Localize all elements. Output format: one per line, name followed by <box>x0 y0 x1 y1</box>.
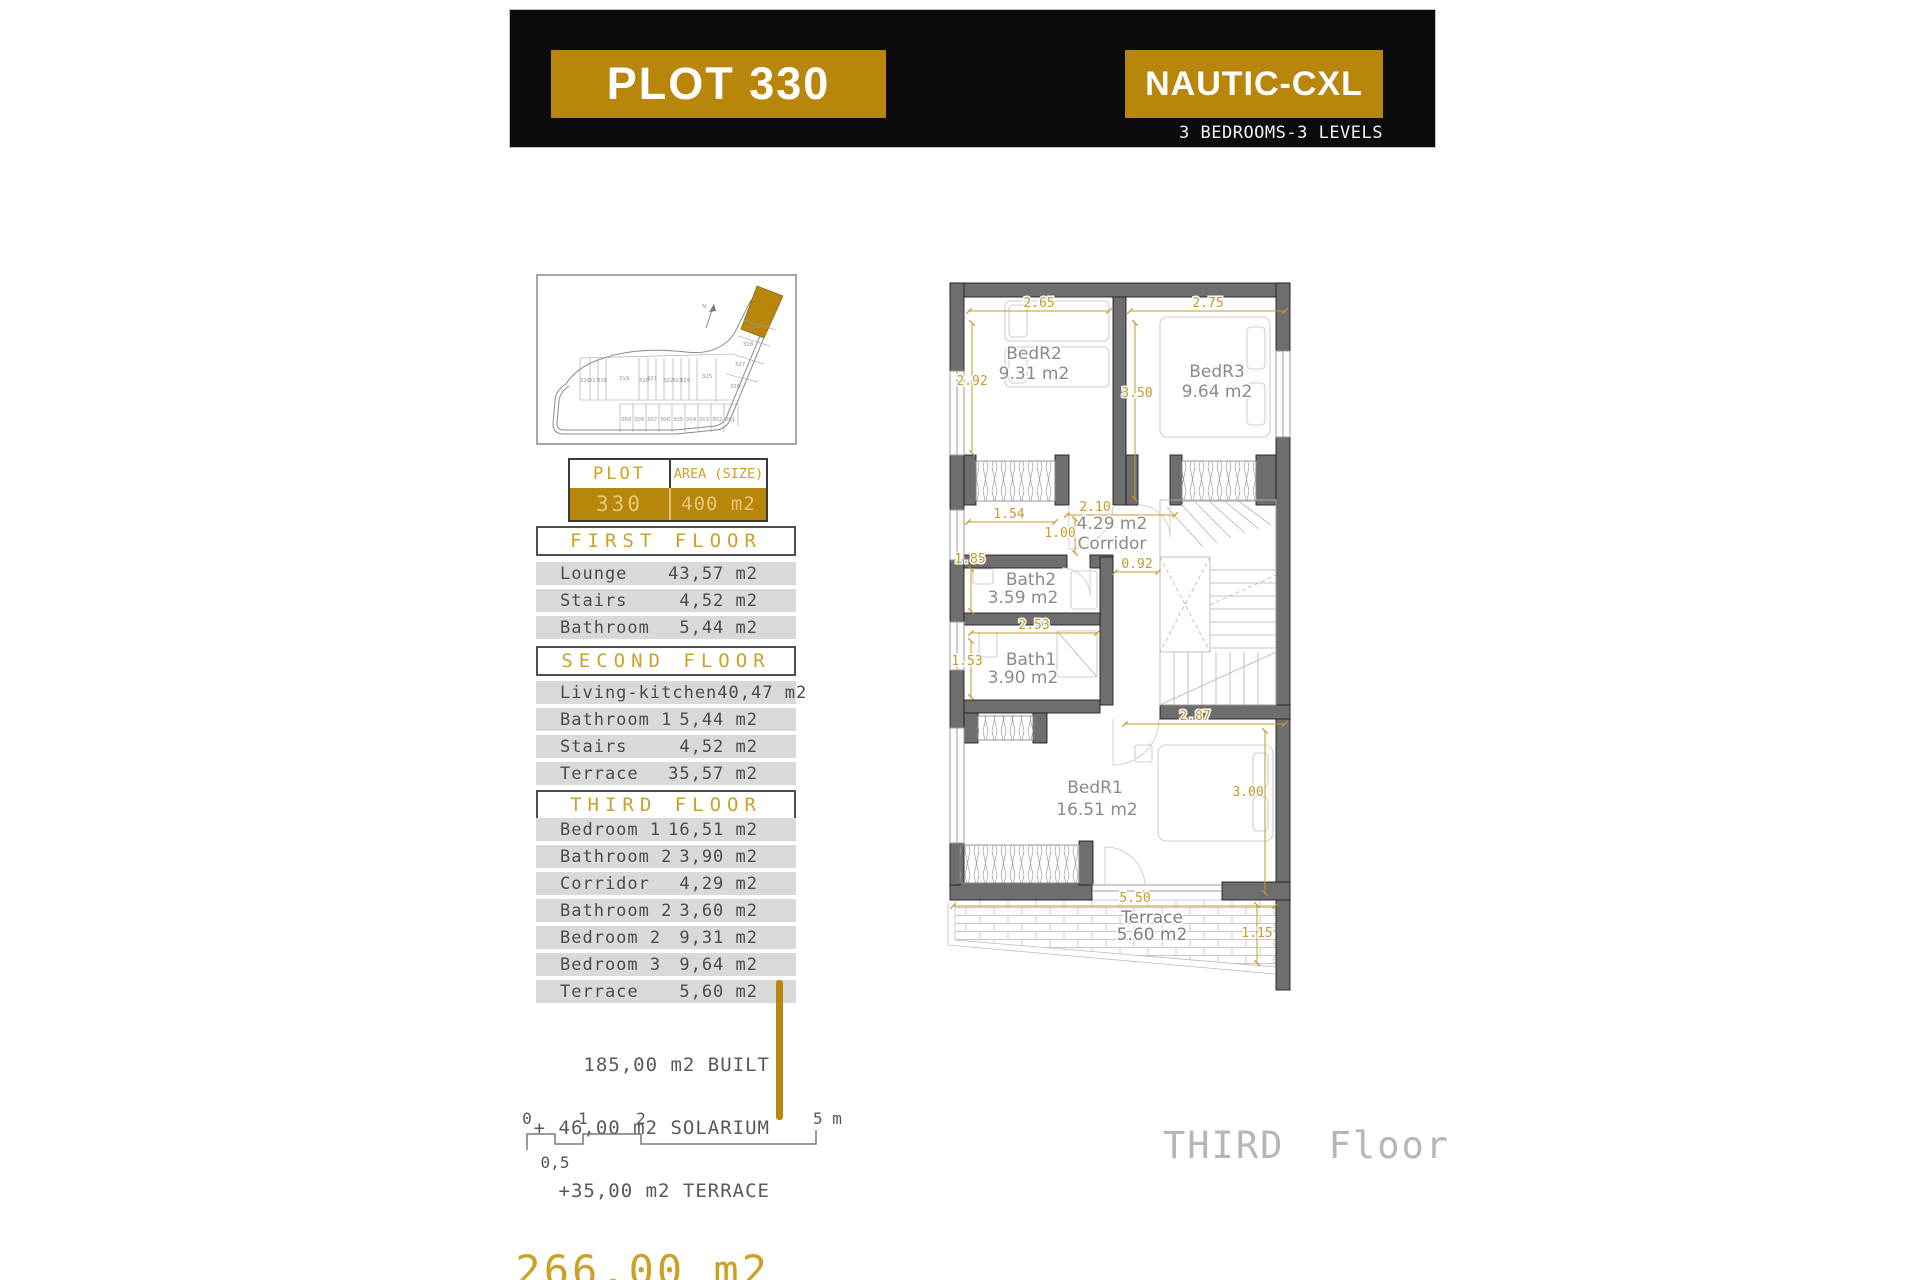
row-value: 4,52 m2 <box>679 591 758 611</box>
row-label: Bathroom 2 <box>560 847 672 867</box>
row-value: 40,47 m2 <box>717 683 807 703</box>
row-value: 5,60 m2 <box>679 982 758 1002</box>
room-area-bedr1: 16.51 m2 <box>1056 800 1137 820</box>
table-row: Bedroom 39,64 m2 <box>536 953 796 976</box>
dim-label: 2.10 <box>1079 500 1110 515</box>
room-area-bedr3: 9.64 m2 <box>1182 382 1253 402</box>
row-label: Bedroom 2 <box>560 928 661 948</box>
scale-tick-5m: 5 m <box>813 1110 842 1128</box>
dim-label: 1.00 <box>1044 526 1075 541</box>
row-value: 5,44 m2 <box>679 618 758 638</box>
room-label-corridor: Corridor <box>1078 534 1147 554</box>
svg-text:321: 321 <box>647 376 658 382</box>
model-badge: NAUTIC-CXL <box>1125 50 1383 118</box>
dim-label: 1.54 <box>993 507 1024 522</box>
third-floor-title: THIRD FLOOR <box>570 794 762 816</box>
plot-value-cell: 330 <box>570 488 671 520</box>
row-label: Bathroom 2 <box>560 901 672 921</box>
table-row: Terrace35,57 m2 <box>536 762 796 785</box>
total-terrace: +35,00 m2 TERRACE <box>420 1181 770 1202</box>
svg-text:303: 303 <box>699 417 710 423</box>
dim-label: 2.65 <box>1023 296 1054 311</box>
row-value: 3,90 m2 <box>679 847 758 867</box>
row-label: Living-kitchen <box>560 683 717 703</box>
second-floor-rows: Living-kitchen40,47 m2 Bathroom 15,44 m2… <box>536 681 796 789</box>
dim-label: 5.50 <box>1119 891 1150 906</box>
floor-caption: THIRD Floor <box>1163 1124 1450 1167</box>
svg-text:304: 304 <box>686 417 697 423</box>
row-value: 43,57 m2 <box>668 564 758 584</box>
dim-label: 3.00 <box>1232 785 1263 800</box>
scale-tick-1: 1 <box>578 1110 588 1128</box>
scale-bar: 0 1 2 5 m 0,5 <box>515 1110 855 1174</box>
totals-gold-marker <box>776 980 783 1120</box>
svg-text:301: 301 <box>725 417 736 423</box>
row-value: 35,57 m2 <box>668 764 758 784</box>
table-row: Terrace5,60 m2 <box>536 980 796 1003</box>
row-label: Corridor <box>560 874 650 894</box>
table-row: Bathroom 23,60 m2 <box>536 899 796 922</box>
dim-label: 2.53 <box>1018 618 1049 633</box>
grand-total: 266,00 m2 <box>420 1250 770 1280</box>
svg-text:329: 329 <box>750 324 761 330</box>
row-label: Stairs <box>560 737 627 757</box>
svg-text:302: 302 <box>712 417 723 423</box>
room-area-bath1: 3.90 m2 <box>988 668 1059 688</box>
table-row: Bedroom 29,31 m2 <box>536 926 796 949</box>
third-floor-rows: Bedroom 116,51 m2 Bathroom 23,90 m2 Corr… <box>536 818 796 1007</box>
total-built: 185,00 m2 BUILT <box>420 1055 770 1076</box>
svg-text:308: 308 <box>634 417 645 423</box>
svg-text:326: 326 <box>730 384 741 390</box>
row-value: 9,64 m2 <box>679 955 758 975</box>
table-row: Stairs4,52 m2 <box>536 735 796 758</box>
svg-text:327: 327 <box>735 362 746 368</box>
svg-text:324: 324 <box>680 378 691 384</box>
scale-bar-line <box>527 1130 816 1150</box>
header-subtitle: 3 BEDROOMS-3 LEVELS <box>1110 123 1383 143</box>
room-label-bath1: Bath1 <box>1006 650 1056 670</box>
dim-label: 2.87 <box>1179 709 1210 724</box>
row-value: 16,51 m2 <box>668 820 758 840</box>
row-label: Terrace <box>560 982 639 1002</box>
row-label: Bedroom 3 <box>560 955 661 975</box>
room-area-terrace: 5.60 m2 <box>1117 925 1188 945</box>
table-row: Corridor4,29 m2 <box>536 872 796 895</box>
dim-label: 3.50 <box>1121 386 1152 401</box>
table-row: Living-kitchen40,47 m2 <box>536 681 796 704</box>
room-label-bedr1: BedR1 <box>1067 778 1123 798</box>
svg-text:325: 325 <box>702 374 713 380</box>
room-label-bedr3: BedR3 <box>1189 362 1245 382</box>
svg-text:318: 318 <box>597 378 608 384</box>
room-label-bedr2: BedR2 <box>1006 344 1062 364</box>
svg-text:N: N <box>702 304 706 310</box>
second-floor-title: SECOND FLOOR <box>561 650 770 672</box>
room-area-corridor: 4.29 m2 <box>1077 514 1148 534</box>
row-label: Stairs <box>560 591 627 611</box>
svg-text:306: 306 <box>660 417 671 423</box>
svg-text:305: 305 <box>673 417 684 423</box>
model-title: NAUTIC-CXL <box>1145 65 1363 104</box>
plot-header-cell: PLOT <box>570 460 671 488</box>
first-floor-header: FIRST FLOOR <box>536 526 796 556</box>
plot-area-table: PLOT AREA (SIZE) 330 400 m2 <box>568 458 768 522</box>
row-value: 4,52 m2 <box>679 737 758 757</box>
svg-text:319: 319 <box>619 376 630 382</box>
door-arcs <box>1062 505 1170 885</box>
room-area-bath2: 3.59 m2 <box>988 588 1059 608</box>
dim-label: 2.92 <box>956 374 987 389</box>
room-area-bedr2: 9.31 m2 <box>999 364 1070 384</box>
table-row: Bathroom 23,90 m2 <box>536 845 796 868</box>
table-row: Bedroom 116,51 m2 <box>536 818 796 841</box>
table-row: Lounge43,57 m2 <box>536 562 796 585</box>
row-label: Terrace <box>560 764 639 784</box>
svg-text:309: 309 <box>621 417 632 423</box>
terrace-floor <box>948 900 1276 974</box>
row-label: Bedroom 1 <box>560 820 661 840</box>
second-floor-header: SECOND FLOOR <box>536 646 796 676</box>
table-row: Bathroom 15,44 m2 <box>536 708 796 731</box>
row-label: Lounge <box>560 564 627 584</box>
row-label: Bathroom <box>560 618 650 638</box>
scale-tick-0: 0 <box>522 1110 532 1128</box>
dim-label: 1.15 <box>1241 926 1272 941</box>
floor-plan-svg: 2.65 2.75 2.92 3.50 1.54 2.10 1.00 1.85 … <box>945 275 1335 1005</box>
first-floor-rows: Lounge43,57 m2 Stairs4,52 m2 Bathroom5,4… <box>536 562 796 643</box>
third-floor-header: THIRD FLOOR <box>536 790 796 820</box>
row-label: Bathroom 1 <box>560 710 672 730</box>
table-row: Bathroom5,44 m2 <box>536 616 796 639</box>
table-row: Stairs4,52 m2 <box>536 589 796 612</box>
dim-label: 1.85 <box>954 552 985 567</box>
row-value: 3,60 m2 <box>679 901 758 921</box>
row-value: 4,29 m2 <box>679 874 758 894</box>
plot-badge: PLOT 330 <box>551 50 886 118</box>
row-value: 9,31 m2 <box>679 928 758 948</box>
room-label-bath2: Bath2 <box>1006 570 1056 590</box>
scale-tick-2: 2 <box>636 1110 646 1128</box>
plot-title: PLOT 330 <box>607 58 831 110</box>
area-value-cell: 400 m2 <box>671 488 766 520</box>
first-floor-title: FIRST FLOOR <box>570 530 762 552</box>
dim-label: 0.92 <box>1121 557 1152 572</box>
scale-half-label: 0,5 <box>541 1153 570 1172</box>
stairwell <box>1160 500 1276 705</box>
header-bar: PLOT 330 NAUTIC-CXL 3 BEDROOMS-3 LEVELS <box>510 10 1435 147</box>
svg-text:328: 328 <box>743 342 754 348</box>
site-plan-thumbnail: N 316 317 318 319 320 321 322 323 324 32… <box>536 274 797 445</box>
svg-text:307: 307 <box>647 417 658 423</box>
row-value: 5,44 m2 <box>679 710 758 730</box>
dim-label: 1.53 <box>951 654 982 669</box>
plan-sheet: PLOT 330 NAUTIC-CXL 3 BEDROOMS-3 LEVELS <box>0 0 1920 1280</box>
dim-label: 2.75 <box>1192 296 1223 311</box>
area-header-cell: AREA (SIZE) <box>671 460 766 488</box>
